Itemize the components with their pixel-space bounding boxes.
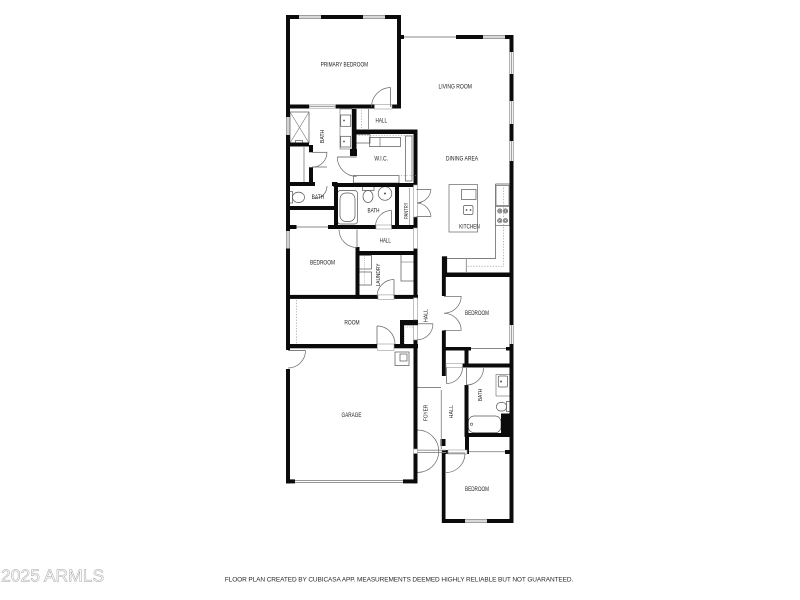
svg-text:PANTRY: PANTRY [404, 202, 410, 219]
svg-text:HALL: HALL [376, 119, 388, 125]
svg-text:FLOOR PLAN CREATED BY CUBICASA: FLOOR PLAN CREATED BY CUBICASA APP. MEAS… [225, 577, 574, 584]
svg-text:W.I.C.: W.I.C. [374, 156, 388, 162]
svg-text:HALL: HALL [380, 238, 391, 244]
svg-text:HALL: HALL [423, 309, 429, 322]
svg-text:KITCHEN: KITCHEN [459, 225, 480, 231]
svg-text:BEDROOM: BEDROOM [310, 261, 335, 267]
svg-text:BEDROOM: BEDROOM [465, 487, 489, 493]
svg-text:BEDROOM: BEDROOM [465, 311, 489, 317]
svg-text:2025 ARMLS: 2025 ARMLS [1, 566, 104, 586]
svg-text:GARAGE: GARAGE [342, 413, 362, 419]
svg-text:BATH: BATH [320, 130, 326, 143]
svg-text:PRIMARY BEDROOM: PRIMARY BEDROOM [321, 63, 369, 69]
svg-text:HALL: HALL [449, 405, 455, 418]
svg-text:ROOM: ROOM [344, 320, 359, 326]
svg-text:FOYER: FOYER [423, 405, 429, 422]
svg-text:LIVING ROOM: LIVING ROOM [438, 84, 472, 90]
svg-text:BATH: BATH [368, 208, 380, 214]
svg-text:LAUNDRY: LAUNDRY [376, 263, 382, 286]
svg-text:BATH: BATH [312, 195, 325, 201]
svg-text:DINING AREA: DINING AREA [446, 156, 478, 162]
svg-text:BATH: BATH [478, 389, 484, 401]
